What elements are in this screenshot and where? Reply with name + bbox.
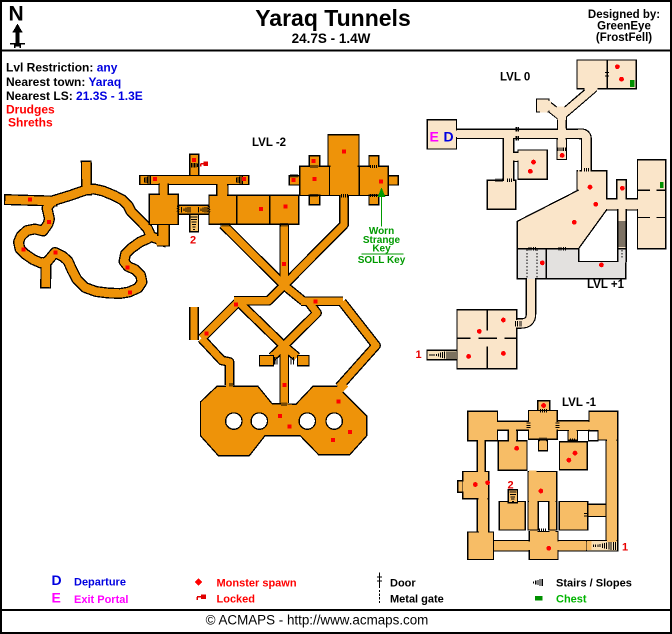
svg-text:E: E: [430, 129, 439, 145]
svg-text:LVL -1: LVL -1: [562, 397, 597, 409]
svg-text:Drudges: Drudges: [6, 102, 55, 116]
svg-text:Metal gate: Metal gate: [390, 594, 444, 606]
svg-text:Yaraq Tunnels: Yaraq Tunnels: [255, 5, 411, 31]
svg-text:D: D: [52, 572, 62, 588]
svg-text:E: E: [52, 590, 61, 606]
svg-text:Nearest LS: 21.3S - 1.3E: Nearest LS: 21.3S - 1.3E: [6, 89, 143, 103]
svg-text:Shreths: Shreths: [8, 116, 53, 130]
svg-text:D: D: [444, 129, 454, 145]
svg-text:LVL +1: LVL +1: [587, 279, 625, 291]
svg-text:Lvl Restriction: any: Lvl Restriction: any: [6, 61, 118, 75]
svg-text:LVL -2: LVL -2: [252, 137, 286, 149]
svg-text:Nearest town: Yaraq: Nearest town: Yaraq: [6, 75, 121, 89]
svg-text:(FrostFell): (FrostFell): [596, 32, 652, 44]
svg-text:1: 1: [622, 542, 628, 554]
svg-text:24.7S - 1.4W: 24.7S - 1.4W: [292, 31, 371, 46]
svg-text:Chest: Chest: [556, 594, 587, 606]
svg-text:2: 2: [190, 235, 196, 247]
svg-text:Key: Key: [372, 244, 391, 255]
svg-text:Stairs / Slopes: Stairs / Slopes: [556, 578, 632, 590]
svg-text:Monster spawn: Monster spawn: [217, 578, 297, 590]
svg-text:2: 2: [508, 480, 514, 492]
svg-text:Designed by:: Designed by:: [588, 9, 660, 21]
svg-text:Door: Door: [390, 578, 416, 590]
svg-text:1: 1: [416, 349, 422, 361]
svg-text:Departure: Departure: [74, 577, 126, 589]
svg-text:N: N: [9, 3, 24, 26]
svg-text:SOLL Key: SOLL Key: [358, 255, 406, 266]
svg-text:Exit Portal: Exit Portal: [74, 594, 128, 606]
svg-text:LVL 0: LVL 0: [500, 72, 530, 84]
svg-text:© ACMAPS - http://www.acmaps.c: © ACMAPS - http://www.acmaps.com: [206, 613, 429, 628]
svg-text:Locked: Locked: [217, 594, 256, 606]
svg-text:GreenEye: GreenEye: [597, 21, 651, 33]
